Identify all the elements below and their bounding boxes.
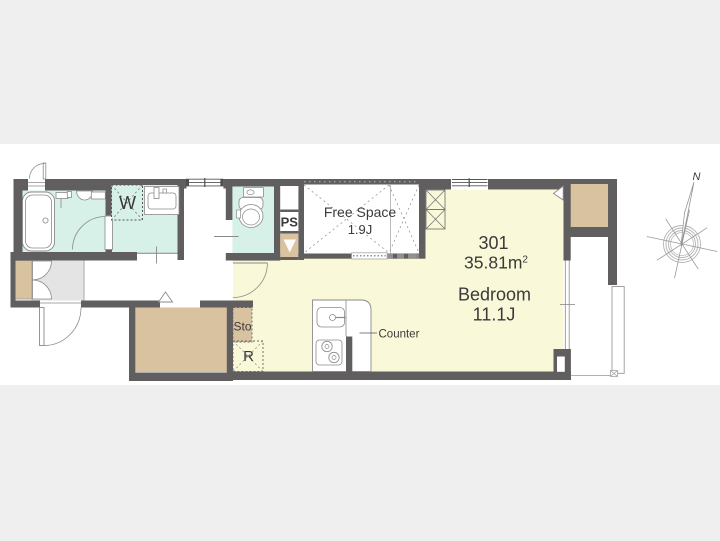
svg-text:Bedroom: Bedroom — [458, 285, 531, 305]
svg-text:R: R — [243, 348, 254, 365]
svg-text:N: N — [693, 171, 701, 183]
svg-text:11.1J: 11.1J — [473, 305, 516, 325]
svg-text:Free Space: Free Space — [324, 204, 397, 220]
svg-text:301: 301 — [478, 233, 508, 253]
svg-text:Counter: Counter — [379, 329, 420, 341]
svg-text:PS: PS — [281, 215, 299, 230]
svg-text:W: W — [119, 193, 136, 213]
svg-text:35.81m2: 35.81m2 — [464, 253, 528, 273]
svg-text:1.9J: 1.9J — [348, 222, 373, 237]
svg-text:Sto: Sto — [233, 320, 251, 334]
